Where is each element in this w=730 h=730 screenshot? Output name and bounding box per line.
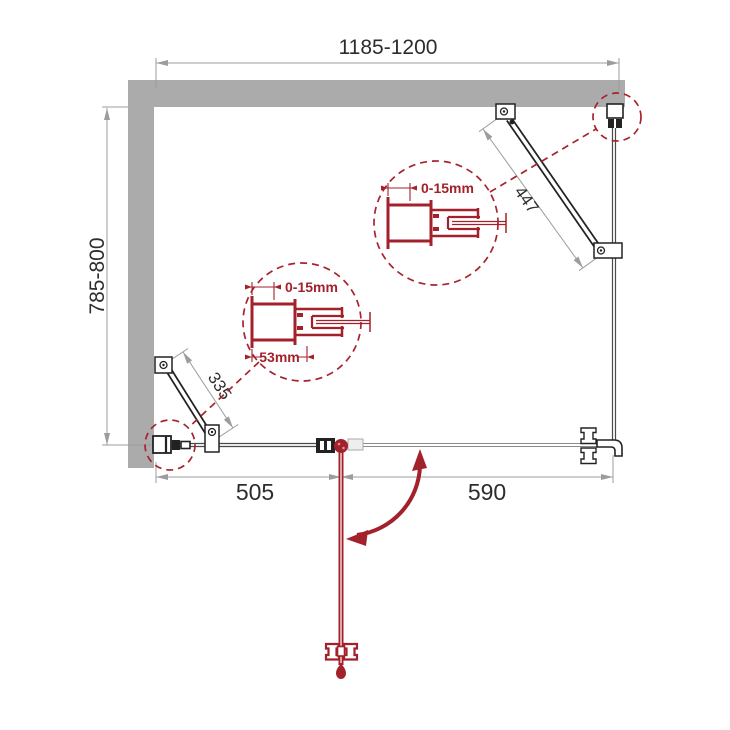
door-swing-arrow xyxy=(346,449,427,546)
side-panel-wall-bracket xyxy=(607,104,623,118)
top-wall xyxy=(128,80,625,107)
profile-detail-upper: 0-15mm xyxy=(381,180,506,249)
shower-enclosure-diagram: 1185-1200 785-800 505 590 447 335 xyxy=(0,0,730,730)
brace-right-length-label: 447 xyxy=(510,183,542,217)
upper-adjustment-label: 0-15mm xyxy=(421,180,474,196)
side-glass-panel xyxy=(613,128,616,445)
wall-profile-connector xyxy=(153,436,171,453)
support-braces xyxy=(155,104,622,452)
door-hinge-ghost xyxy=(348,439,363,450)
dimension-arrows xyxy=(104,60,619,480)
lower-adjustment-label: 0-15mm xyxy=(285,279,338,295)
door-pivot xyxy=(334,439,348,453)
profile-detail-lower: 0-15mm 53mm xyxy=(245,279,370,365)
left-depth-label: 785-800 xyxy=(86,237,109,314)
fixed-panel-width-label: 505 xyxy=(236,479,274,505)
door-profile-block xyxy=(316,438,335,453)
swing-arrowhead-up xyxy=(412,449,427,471)
diagram-svg: 1185-1200 785-800 505 590 447 335 xyxy=(0,0,730,730)
walls xyxy=(128,80,625,468)
brace-right-dimension-line xyxy=(479,115,602,270)
corner-connector xyxy=(597,440,622,456)
swing-arrowhead-left xyxy=(346,530,368,546)
door-width-label: 590 xyxy=(468,479,506,505)
bottom-dimension-line xyxy=(156,455,613,483)
top-width-label: 1185-1200 xyxy=(339,36,438,59)
door-closed-position xyxy=(347,444,600,447)
hardware xyxy=(153,104,623,464)
glass-clamp-knob-top xyxy=(581,428,596,444)
detail-callout-circles xyxy=(145,93,641,470)
profile-width-label: 53mm xyxy=(259,349,299,365)
glass-clamp-knob-bottom xyxy=(581,448,596,464)
left-wall xyxy=(128,80,154,468)
door-handle-tip xyxy=(336,664,346,679)
dimension-lines xyxy=(102,58,619,483)
